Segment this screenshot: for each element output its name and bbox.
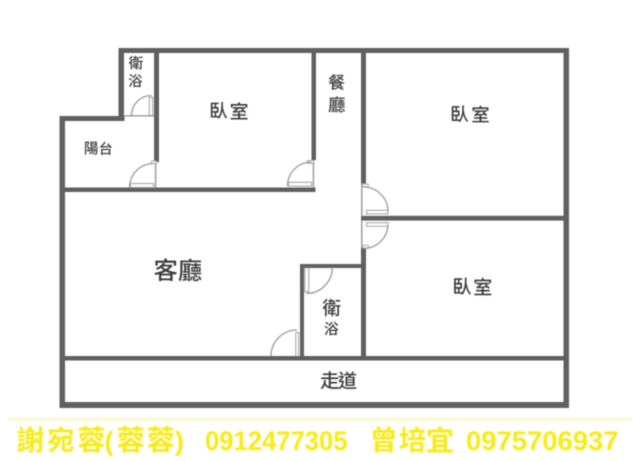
svg-text:0912477305: 0912477305	[205, 426, 348, 456]
svg-text:): )	[175, 427, 184, 457]
svg-text:0975706937: 0975706937	[466, 426, 619, 456]
svg-text:(: (	[105, 427, 114, 457]
